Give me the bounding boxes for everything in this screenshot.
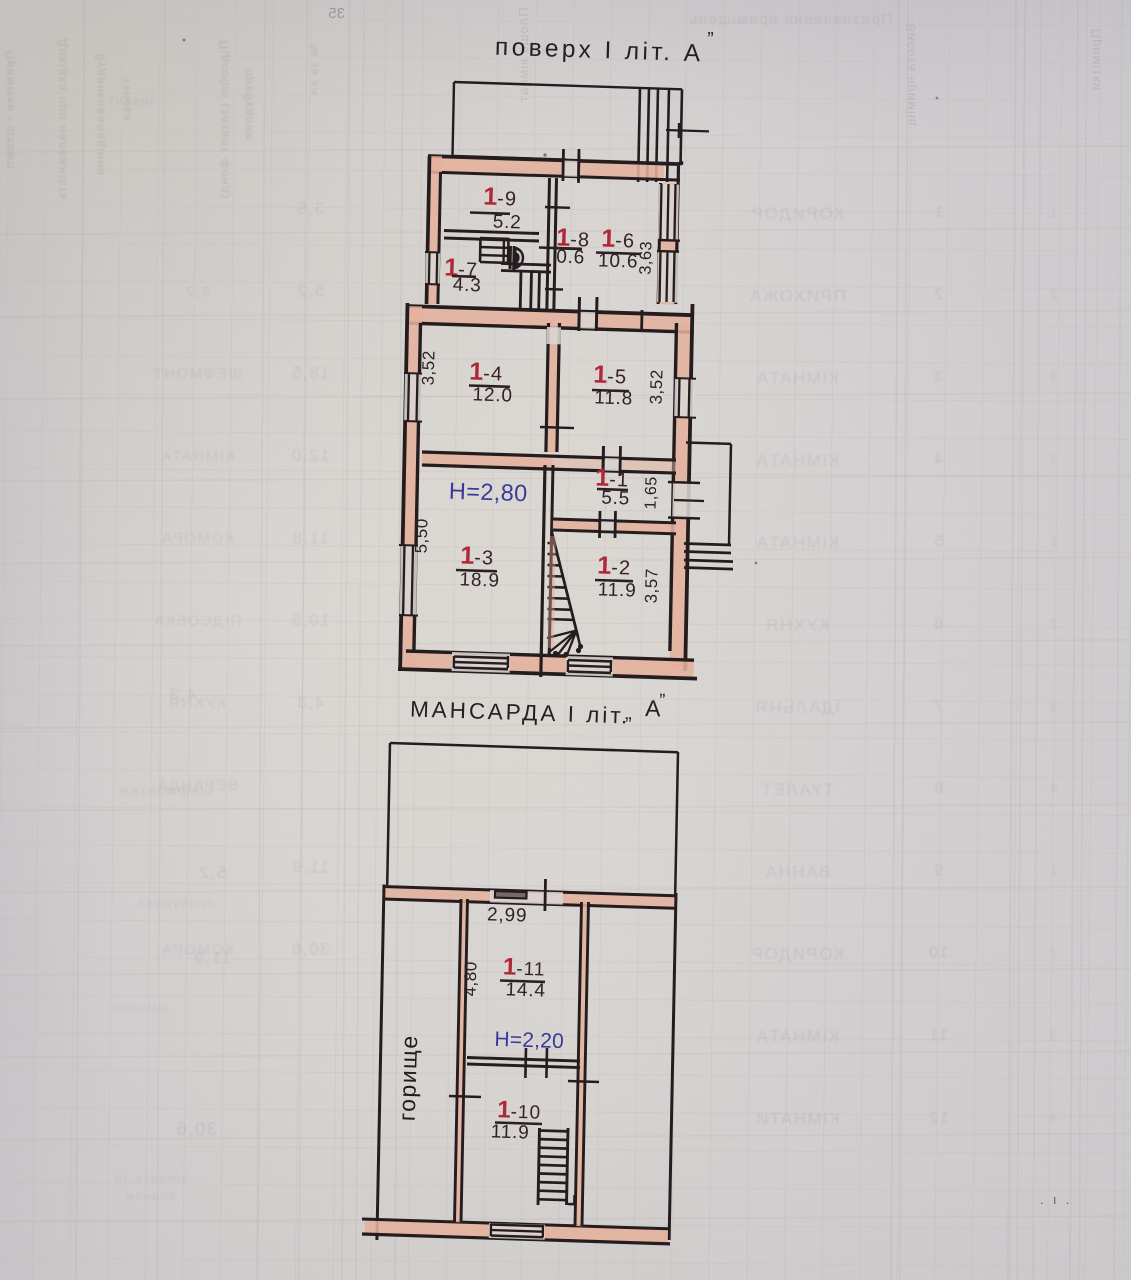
svg-text:12,0: 12,0 bbox=[290, 446, 330, 465]
svg-text:ВАННА: ВАННА bbox=[764, 862, 830, 881]
svg-text:4,3: 4,3 bbox=[296, 693, 324, 712]
svg-text:прибудови: прибудови bbox=[241, 69, 255, 140]
svg-text:2: 2 bbox=[1048, 945, 1057, 961]
svg-text:будинковолодіння: будинковолодіння bbox=[93, 54, 107, 177]
svg-text:2: 2 bbox=[933, 286, 944, 303]
svg-text:1: 1 bbox=[933, 204, 944, 221]
svg-text:4,80: 4,80 bbox=[460, 961, 480, 997]
svg-text:Підсобні (захват фонд): Підсобні (захват фонд) bbox=[217, 40, 231, 199]
svg-text:1,65: 1,65 bbox=[642, 476, 660, 510]
svg-text:5,2: 5,2 bbox=[184, 283, 210, 300]
svg-text:3: 3 bbox=[1048, 1027, 1057, 1043]
svg-text:30,6: 30,6 bbox=[175, 1119, 216, 1139]
svg-text:. ι .: . ι . bbox=[1040, 1192, 1072, 1207]
svg-text:6: 6 bbox=[933, 616, 944, 633]
svg-text:„: „ bbox=[625, 702, 632, 724]
svg-text:35: 35 bbox=[328, 5, 345, 22]
svg-text:КОРИДОР: КОРИДОР bbox=[750, 945, 844, 964]
svg-text:”: ” bbox=[659, 690, 666, 710]
svg-text:4,3: 4,3 bbox=[168, 685, 196, 704]
svg-text:Примітки і штамп: Примітки і штамп bbox=[3, 51, 17, 170]
svg-text:планом: планом bbox=[124, 1189, 175, 1203]
svg-text:10: 10 bbox=[928, 945, 949, 962]
svg-text:ПРИХОЖА: ПРИХОЖА bbox=[748, 286, 846, 305]
svg-text:Довідка про належність: Довідка про належність bbox=[55, 39, 69, 201]
svg-text:Інвент: Інвент bbox=[106, 93, 154, 108]
svg-text:шефмонтаж: шефмонтаж bbox=[118, 782, 212, 798]
svg-text:КІМНАТИ: КІМНАТИ bbox=[755, 1109, 840, 1128]
svg-text:4: 4 bbox=[933, 451, 944, 468]
svg-text:КІМНАТА: КІМНАТА bbox=[160, 448, 235, 465]
svg-text:18.9: 18.9 bbox=[459, 569, 500, 591]
svg-text:2,99: 2,99 bbox=[487, 904, 528, 926]
svg-text:11.9: 11.9 bbox=[597, 579, 636, 601]
svg-text:11,9: 11,9 bbox=[291, 857, 329, 876]
svg-text:8: 8 bbox=[933, 780, 944, 797]
svg-text:Призначення приміщень: Призначення приміщень bbox=[688, 11, 892, 28]
svg-text:горище: горище bbox=[394, 1034, 423, 1122]
svg-text:Н=2,80: Н=2,80 bbox=[448, 478, 528, 507]
svg-text:1: 1 bbox=[1048, 862, 1057, 878]
svg-text:Примітки: Примітки bbox=[1088, 29, 1103, 92]
svg-text:ЇДАЛЬНЯ: ЇДАЛЬНЯ bbox=[754, 698, 840, 717]
svg-text:ТУАЛЕТ: ТУАЛЕТ bbox=[760, 780, 834, 799]
svg-text:КІМНАТА: КІМНАТА bbox=[755, 533, 838, 552]
svg-text:КОРИДОР: КОРИДОР bbox=[750, 204, 844, 223]
svg-text:3: 3 bbox=[933, 369, 944, 386]
svg-text:11: 11 bbox=[928, 1027, 948, 1044]
svg-text:5: 5 bbox=[933, 533, 944, 550]
svg-text:кімнати за: кімнати за bbox=[114, 1171, 187, 1185]
svg-text:11.8: 11.8 bbox=[594, 387, 633, 409]
svg-text:Висота приміщ: Висота приміщ bbox=[903, 23, 918, 126]
svg-text:5,2: 5,2 bbox=[296, 281, 324, 300]
svg-text:30,6: 30,6 bbox=[290, 940, 330, 959]
svg-text:7: 7 bbox=[933, 698, 944, 715]
svg-text:КОМОРА: КОМОРА bbox=[160, 530, 233, 547]
svg-text:10.6: 10.6 bbox=[598, 250, 639, 272]
svg-text:18,5: 18,5 bbox=[290, 364, 330, 383]
svg-text:№ за пл: № за пл bbox=[309, 44, 321, 95]
svg-text:12.0: 12.0 bbox=[472, 384, 513, 406]
svg-text:3: 3 bbox=[1048, 369, 1057, 385]
svg-text:9: 9 bbox=[933, 862, 944, 879]
svg-text:1: 1 bbox=[1048, 533, 1057, 549]
svg-text:3,57: 3,57 bbox=[641, 568, 661, 604]
svg-text:КУХНЯ: КУХНЯ bbox=[765, 616, 830, 635]
svg-text:”: ” bbox=[707, 29, 714, 50]
svg-text:КІМНАТА: КІМНАТА bbox=[755, 451, 838, 470]
svg-text:ШЕФМОНТ: ШЕФМОНТ bbox=[152, 366, 243, 383]
svg-text:14.4: 14.4 bbox=[505, 979, 546, 1001]
svg-text:5.5: 5.5 bbox=[601, 488, 630, 510]
svg-text:5,2: 5,2 bbox=[198, 863, 226, 882]
svg-text:3: 3 bbox=[1048, 698, 1057, 714]
svg-text:3,52: 3,52 bbox=[418, 350, 438, 386]
svg-text:1: 1 bbox=[1048, 204, 1057, 220]
svg-text:2: 2 bbox=[1048, 616, 1057, 632]
svg-text:2: 2 bbox=[1048, 286, 1057, 302]
svg-text:кімната: кімната bbox=[112, 1000, 168, 1015]
svg-text:12: 12 bbox=[928, 1109, 949, 1126]
svg-text:11,9: 11,9 bbox=[193, 948, 231, 967]
svg-text:прибудова: прибудова bbox=[136, 895, 214, 910]
svg-text:КІМНАТА: КІМНАТА bbox=[755, 369, 838, 388]
svg-text:ПІДСОБКА: ПІДСОБКА bbox=[153, 613, 242, 630]
svg-text:11.9: 11.9 bbox=[490, 1121, 529, 1143]
svg-text:5,50: 5,50 bbox=[411, 518, 431, 554]
svg-text:Н=2,20: Н=2,20 bbox=[494, 1028, 564, 1053]
svg-text:4: 4 bbox=[1048, 780, 1057, 796]
svg-text:3,5: 3,5 bbox=[296, 199, 324, 218]
svg-text:4: 4 bbox=[1048, 451, 1057, 467]
svg-text:4.3: 4.3 bbox=[452, 275, 481, 297]
svg-text:КІМНАТА: КІМНАТА bbox=[755, 1027, 838, 1046]
svg-text:4: 4 bbox=[1048, 1109, 1057, 1125]
svg-text:3,52: 3,52 bbox=[646, 369, 666, 405]
svg-text:5.2: 5.2 bbox=[492, 212, 521, 234]
svg-text:10,5: 10,5 bbox=[290, 611, 330, 630]
svg-text:3,63: 3,63 bbox=[636, 241, 655, 275]
svg-text:11,8: 11,8 bbox=[291, 528, 329, 547]
svg-text:0.6: 0.6 bbox=[556, 247, 585, 269]
